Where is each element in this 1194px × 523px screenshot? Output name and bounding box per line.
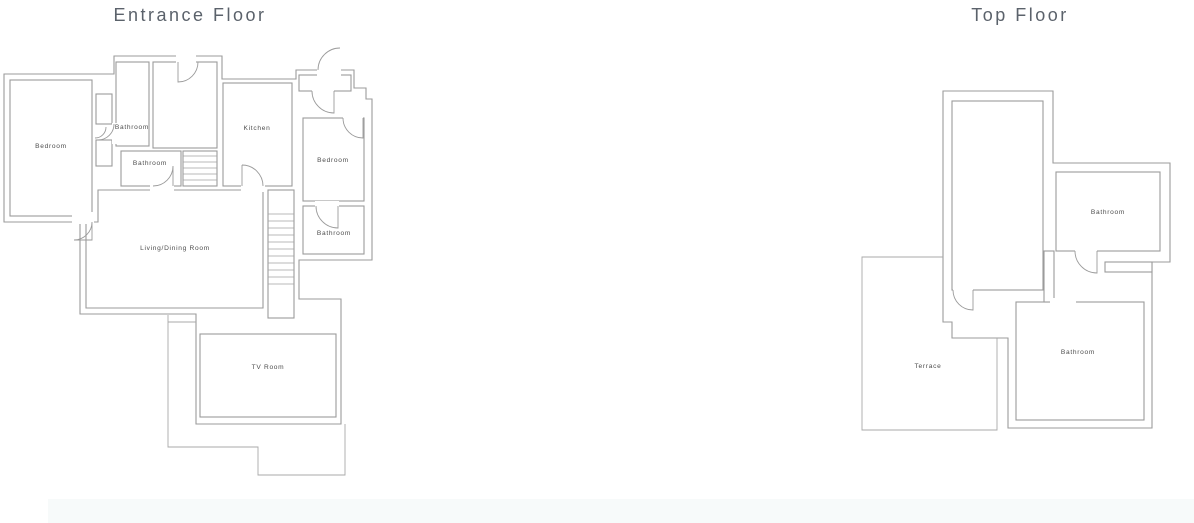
room-stairhall-top xyxy=(952,101,1043,290)
label-bathroom-right: Bathroom xyxy=(317,230,351,237)
corridor-wall-stub-a xyxy=(1044,251,1054,302)
door-arc-front-door xyxy=(318,48,340,70)
label-bedroom-right: Bedroom xyxy=(317,157,349,164)
label-living-dining: Living/Dining Room xyxy=(140,245,210,252)
label-kitchen: Kitchen xyxy=(244,125,271,132)
room-kitchen xyxy=(223,83,292,186)
label-bathroom-upper: Bathroom xyxy=(1091,209,1125,216)
room-bathroom-lower xyxy=(1016,302,1144,420)
room-bathroom-middle xyxy=(121,151,181,186)
door-arc-closet xyxy=(95,127,106,138)
closet-upper xyxy=(96,94,112,124)
label-bathroom-middle: Bathroom xyxy=(133,160,167,167)
label-bathroom-lower: Bathroom xyxy=(1061,349,1095,356)
footer-shadow-bar xyxy=(48,499,1194,523)
closet-lower xyxy=(96,140,112,166)
door-arc-bathroom-top xyxy=(98,124,114,140)
floor-plan-entrance: Bedroom Bathroom Bathroom Kitchen Bedroo… xyxy=(4,48,372,475)
room-hall-top xyxy=(153,62,217,148)
label-bedroom-left: Bedroom xyxy=(35,143,67,150)
label-bathroom-top: Bathroom xyxy=(115,124,149,131)
stair-corridor xyxy=(268,190,294,318)
label-tv-room: TV Room xyxy=(252,364,285,371)
label-terrace: Terrace xyxy=(915,363,942,370)
floor-plan-top: Bathroom Terrace Bathroom xyxy=(862,91,1170,430)
floor-plan-drawing: Bedroom Bathroom Bathroom Kitchen Bedroo… xyxy=(0,0,1194,523)
floorplan-page: Entrance Floor Top Floor xyxy=(0,0,1194,523)
room-tv xyxy=(200,334,336,417)
corridor-wall-stub-b xyxy=(1105,262,1152,272)
